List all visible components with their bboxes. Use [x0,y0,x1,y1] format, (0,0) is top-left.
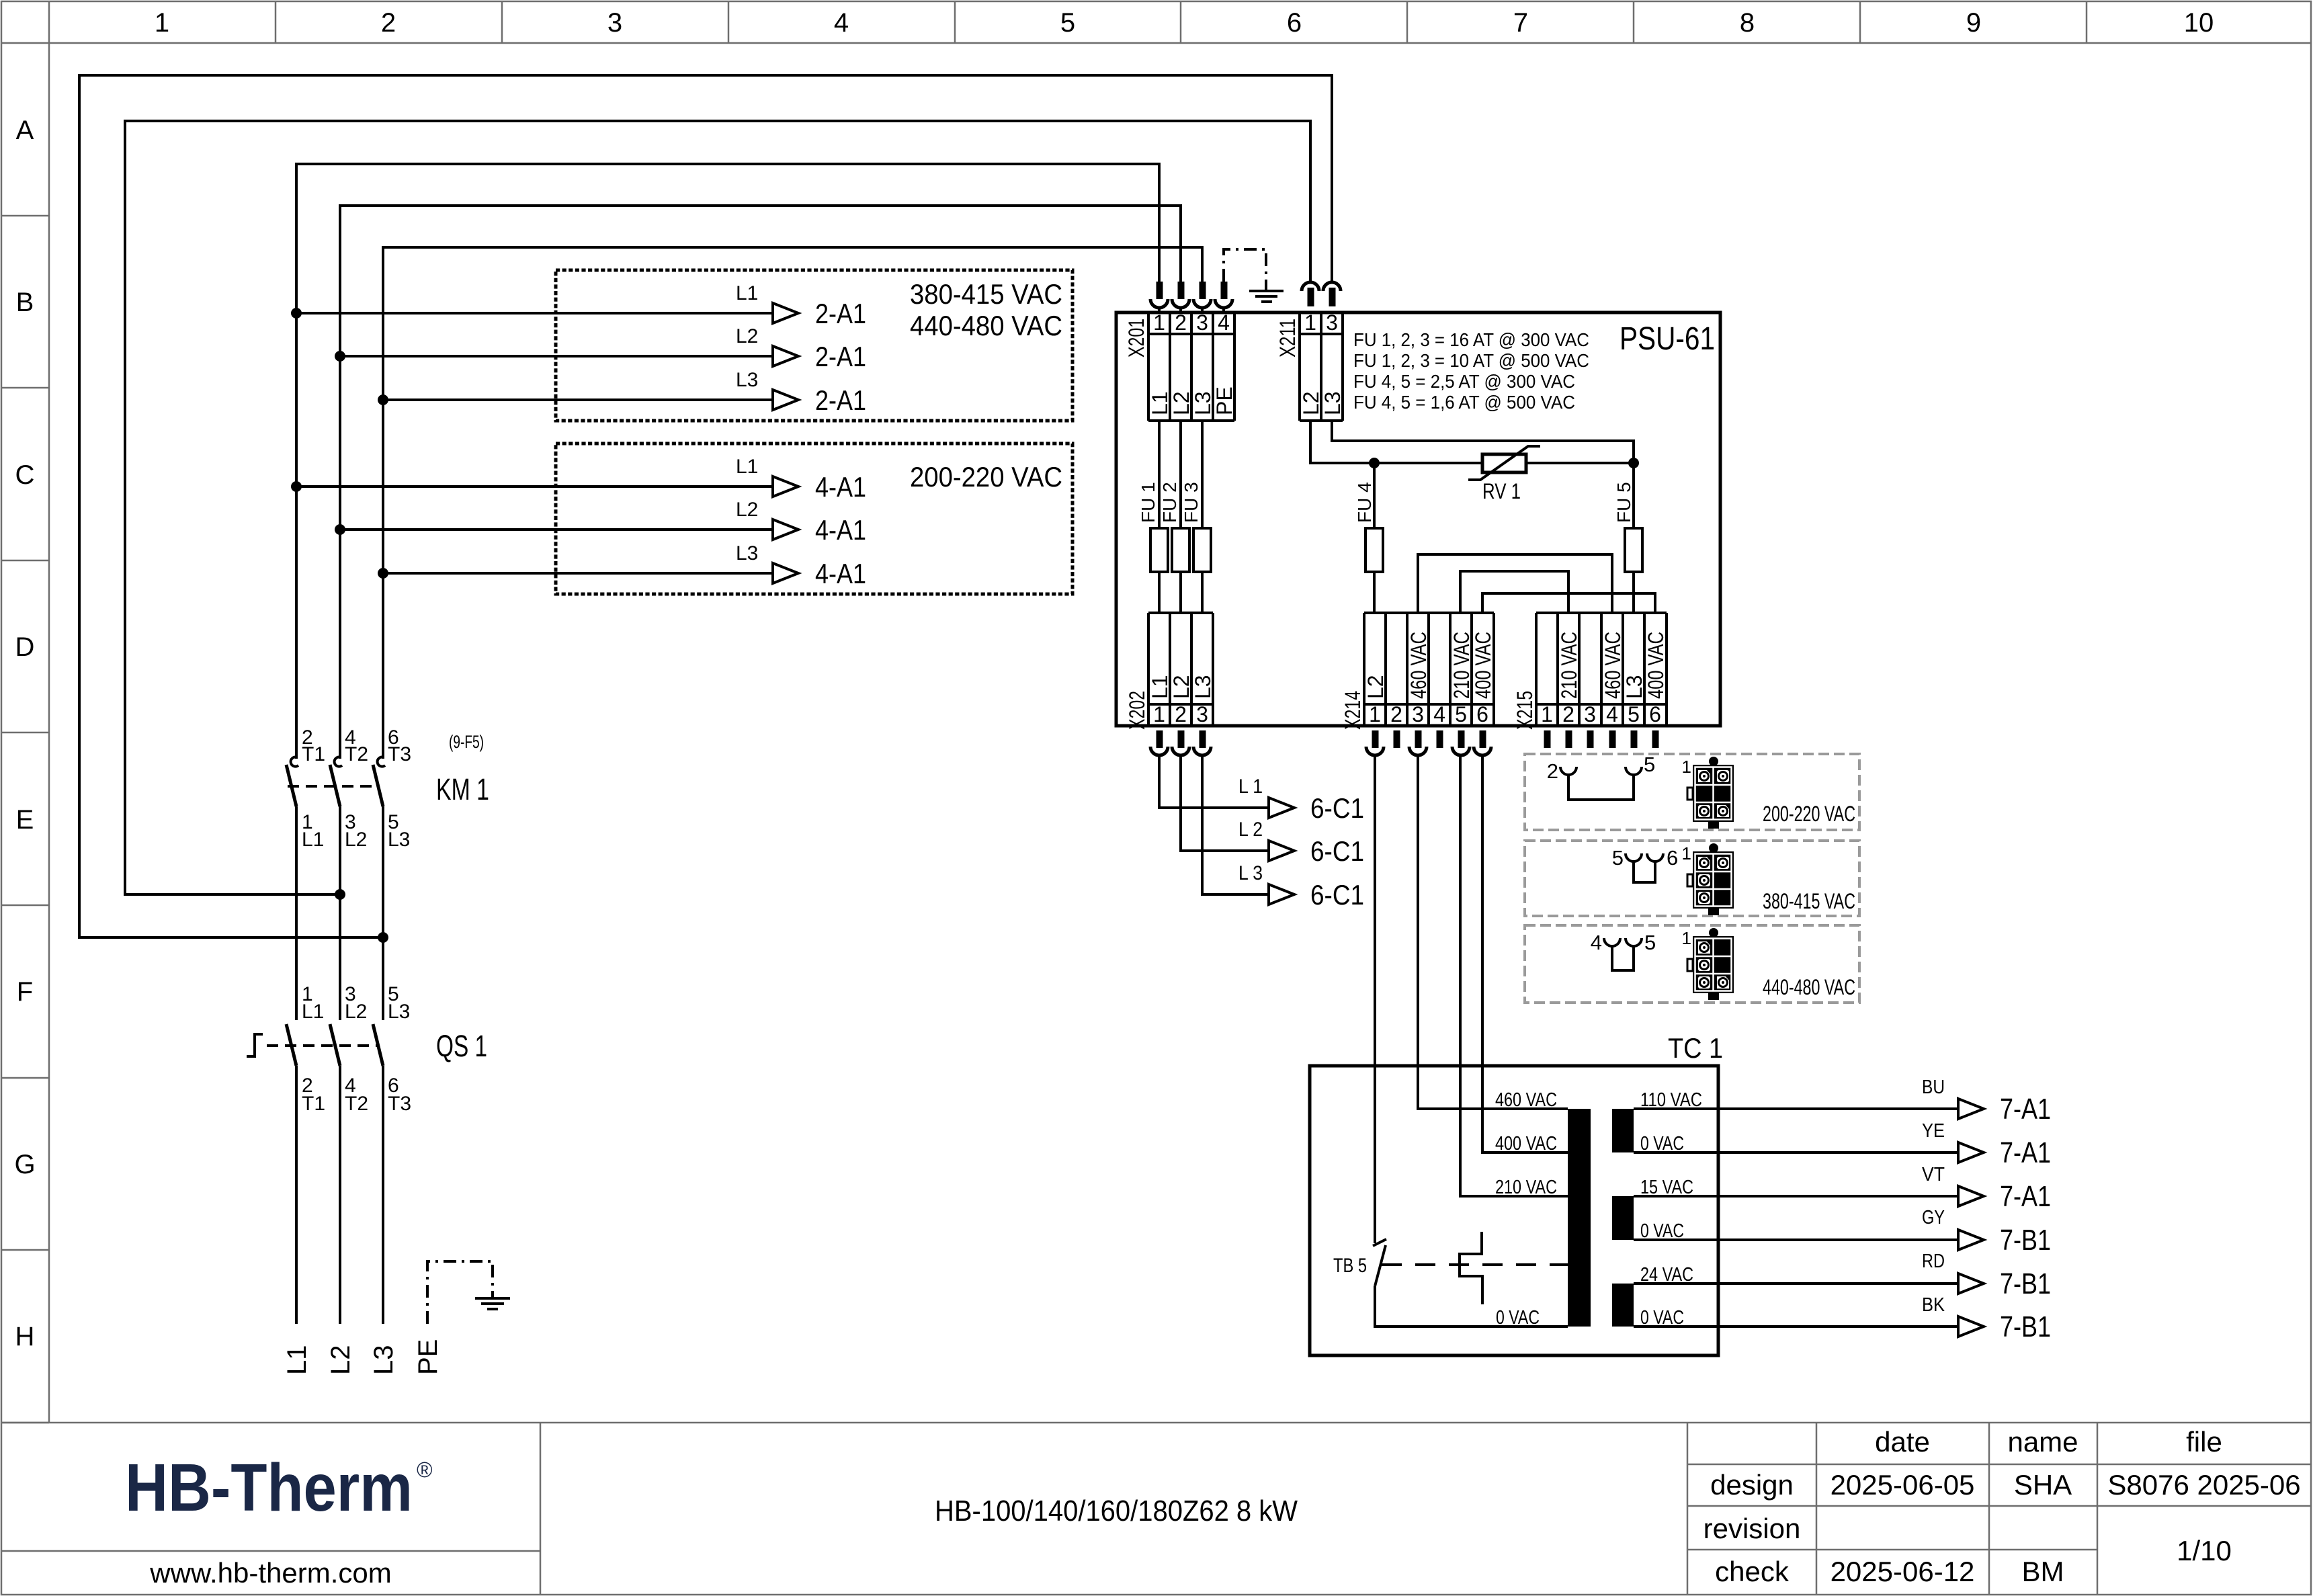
svg-text:400 VAC: 400 VAC [1495,1133,1557,1154]
svg-text:3: 3 [1326,310,1338,335]
svg-text:4: 4 [1433,702,1445,726]
svg-text:1: 1 [1541,702,1553,726]
svg-text:L2: L2 [1299,391,1323,415]
svg-text:6-C1: 6-C1 [1310,835,1364,867]
svg-text:1: 1 [1682,928,1691,948]
svg-text:T2: T2 [345,1093,368,1115]
svg-text:X215: X215 [1513,691,1537,730]
svg-text:3: 3 [1584,702,1596,726]
svg-text:FU 1, 2, 3 = 10 AT @ 500 VAC: FU 1, 2, 3 = 10 AT @ 500 VAC [1353,350,1589,371]
svg-text:9: 9 [1966,8,1981,38]
svg-text:L1: L1 [1148,675,1172,699]
svg-text:3: 3 [1196,702,1208,726]
svg-text:3: 3 [1412,702,1424,726]
svg-text:7: 7 [1513,8,1528,38]
svg-text:2: 2 [1390,702,1402,726]
svg-text:L3: L3 [388,829,410,851]
svg-text:date: date [1875,1426,1930,1458]
svg-text:SHA: SHA [2014,1469,2072,1501]
svg-text:T3: T3 [388,743,411,765]
svg-text:L3: L3 [1191,675,1215,699]
svg-text:7-A1: 7-A1 [2000,1093,2051,1126]
svg-text:HB-Therm: HB-Therm [125,1450,413,1525]
svg-text:7-B1: 7-B1 [2000,1224,2051,1257]
svg-text:PE: PE [1212,386,1236,415]
svg-text:L2: L2 [326,1345,355,1376]
svg-text:380-415 VAC: 380-415 VAC [910,278,1062,310]
svg-text:1: 1 [1153,702,1165,726]
svg-text:T1: T1 [302,743,325,765]
svg-text:L 2: L 2 [1238,818,1263,841]
svg-text:0 VAC: 0 VAC [1496,1307,1540,1329]
svg-text:5: 5 [1060,8,1075,38]
svg-text:210 VAC: 210 VAC [1557,632,1581,699]
svg-text:VT: VT [1922,1164,1945,1185]
svg-text:FU 1, 2, 3 = 16 AT @ 300 VAC: FU 1, 2, 3 = 16 AT @ 300 VAC [1353,329,1589,350]
svg-text:C: C [15,460,35,490]
svg-text:L1: L1 [736,456,758,478]
svg-text:TB 5: TB 5 [1333,1255,1367,1277]
svg-text:2025-06-12: 2025-06-12 [1831,1556,1975,1587]
svg-text:400 VAC: 400 VAC [1644,632,1668,699]
svg-text:FU 1: FU 1 [1138,482,1159,523]
svg-text:RD: RD [1922,1251,1945,1272]
svg-text:L1: L1 [282,1345,312,1376]
svg-text:T2: T2 [345,743,368,765]
svg-text:E: E [16,805,34,835]
svg-text:440-480 VAC: 440-480 VAC [910,310,1062,341]
svg-text:4-A1: 4-A1 [815,558,866,589]
svg-text:3: 3 [607,8,622,38]
svg-text:L1: L1 [1148,391,1172,415]
svg-text:1: 1 [1682,843,1691,864]
svg-text:KM 1: KM 1 [436,772,489,806]
svg-text:L3: L3 [736,542,758,564]
svg-text:file: file [2186,1426,2222,1458]
svg-text:PE: PE [413,1339,443,1375]
svg-text:7-B1: 7-B1 [2000,1310,2051,1343]
svg-text:L 1: L 1 [1238,775,1263,798]
svg-text:L2: L2 [1169,675,1193,699]
svg-text:X214: X214 [1341,691,1365,730]
svg-text:1: 1 [155,8,169,38]
svg-text:FU 4, 5 = 2,5 AT @ 300 VAC: FU 4, 5 = 2,5 AT @ 300 VAC [1353,371,1575,392]
svg-text:L2: L2 [345,829,367,851]
svg-text:S8076 2025-06: S8076 2025-06 [2107,1469,2300,1501]
svg-text:7-A1: 7-A1 [2000,1180,2051,1213]
svg-text:L3: L3 [369,1345,398,1376]
svg-text:check: check [1715,1556,1790,1587]
svg-text:BK: BK [1922,1294,1945,1316]
svg-text:®: ® [417,1458,433,1482]
svg-text:6: 6 [1667,846,1678,870]
svg-text:210 VAC: 210 VAC [1449,632,1474,699]
svg-text:200-220 VAC: 200-220 VAC [1763,802,1855,826]
svg-text:BM: BM [2022,1556,2064,1587]
svg-text:FU 5: FU 5 [1613,482,1634,523]
svg-text:5: 5 [1644,931,1656,954]
svg-text:400 VAC: 400 VAC [1471,632,1495,699]
svg-text:GY: GY [1922,1207,1945,1228]
svg-text:L3: L3 [736,369,758,391]
svg-text:5: 5 [1628,702,1640,726]
svg-text:TC 1: TC 1 [1668,1032,1723,1064]
svg-text:L3: L3 [388,1001,410,1023]
svg-text:1/10: 1/10 [2177,1535,2232,1566]
svg-text:FU 2: FU 2 [1159,482,1180,523]
svg-text:4-A1: 4-A1 [815,514,866,546]
svg-text:X201: X201 [1124,319,1148,358]
svg-text:4: 4 [1218,310,1230,335]
svg-text:X202: X202 [1125,691,1149,730]
svg-text:200-220 VAC: 200-220 VAC [910,461,1062,493]
svg-text:T3: T3 [388,1093,411,1115]
svg-text:revision: revision [1704,1513,1801,1544]
svg-text:7-A1: 7-A1 [2000,1136,2051,1169]
svg-text:1: 1 [1304,310,1316,335]
svg-text:F: F [17,977,33,1007]
svg-text:24 VAC: 24 VAC [1640,1264,1693,1286]
svg-text:RV 1: RV 1 [1482,479,1521,503]
svg-text:design: design [1710,1469,1794,1501]
svg-text:G: G [14,1150,35,1179]
svg-text:L2: L2 [736,325,758,347]
svg-text:L3: L3 [1320,391,1345,415]
svg-text:4-A1: 4-A1 [815,471,866,503]
svg-text:5: 5 [1455,702,1467,726]
svg-text:2: 2 [1562,702,1574,726]
svg-text:L3: L3 [1191,391,1215,415]
svg-text:1: 1 [1153,310,1165,335]
svg-text:YE: YE [1922,1120,1945,1142]
svg-text:210 VAC: 210 VAC [1495,1177,1557,1198]
svg-text:380-415 VAC: 380-415 VAC [1763,889,1855,913]
svg-text:460 VAC: 460 VAC [1495,1089,1557,1111]
svg-text:L 3: L 3 [1238,862,1263,884]
svg-text:2: 2 [1175,310,1187,335]
svg-text:BU: BU [1922,1077,1945,1098]
svg-text:6-C1: 6-C1 [1310,792,1364,824]
svg-text:460 VAC: 460 VAC [1406,632,1431,699]
svg-text:2025-06-05: 2025-06-05 [1831,1469,1975,1501]
svg-text:H: H [15,1322,35,1351]
svg-text:6-C1: 6-C1 [1310,879,1364,911]
svg-text:10: 10 [2184,8,2214,38]
svg-text:6: 6 [1287,8,1302,38]
svg-text:6: 6 [1649,702,1661,726]
svg-text:D: D [15,632,35,662]
svg-text:440-480 VAC: 440-480 VAC [1763,975,1855,999]
svg-text:1: 1 [1369,702,1381,726]
svg-text:FU 4, 5 = 1,6 AT @ 500 VAC: FU 4, 5 = 1,6 AT @ 500 VAC [1353,392,1575,413]
svg-text:www.hb-therm.com: www.hb-therm.com [149,1557,391,1589]
svg-text:L3: L3 [1622,675,1646,699]
svg-text:2-A1: 2-A1 [815,341,866,372]
svg-text:7-B1: 7-B1 [2000,1267,2051,1300]
svg-text:4: 4 [834,8,849,38]
svg-text:FU 3: FU 3 [1181,482,1202,523]
svg-text:X211: X211 [1275,319,1300,358]
svg-text:110 VAC: 110 VAC [1640,1089,1702,1111]
svg-text:2: 2 [381,8,396,38]
svg-text:5: 5 [1644,753,1655,776]
svg-text:1: 1 [1682,757,1691,777]
svg-text:name: name [2007,1426,2078,1458]
svg-text:0 VAC: 0 VAC [1640,1133,1684,1154]
svg-text:2: 2 [1547,759,1558,783]
svg-text:L2: L2 [736,499,758,521]
svg-text:L2: L2 [1169,391,1193,415]
svg-text:2: 2 [1175,702,1187,726]
svg-text:15 VAC: 15 VAC [1640,1177,1693,1198]
svg-text:L1: L1 [302,829,324,851]
svg-text:(9-F5): (9-F5) [449,732,484,752]
svg-text:L1: L1 [736,282,758,304]
svg-text:4: 4 [1606,702,1618,726]
svg-text:5: 5 [1612,846,1624,870]
svg-text:8: 8 [1740,8,1755,38]
svg-text:L1: L1 [302,1001,324,1023]
svg-text:B: B [16,288,34,317]
svg-text:A: A [16,116,34,145]
svg-text:FU 4: FU 4 [1354,482,1375,523]
svg-text:6: 6 [1476,702,1488,726]
svg-text:2-A1: 2-A1 [815,298,866,329]
svg-text:PSU-61: PSU-61 [1620,321,1715,357]
svg-text:4: 4 [1591,931,1602,954]
svg-text:0 VAC: 0 VAC [1640,1307,1684,1329]
svg-text:HB-100/140/160/180Z62 8 kW: HB-100/140/160/180Z62 8 kW [935,1495,1298,1527]
svg-text:3: 3 [1196,310,1208,335]
svg-text:460 VAC: 460 VAC [1601,632,1625,699]
svg-text:T1: T1 [302,1093,325,1115]
svg-text:L2: L2 [1363,675,1388,699]
svg-text:QS 1: QS 1 [436,1029,487,1063]
svg-text:2-A1: 2-A1 [815,384,866,416]
svg-text:L2: L2 [345,1001,367,1023]
svg-text:0 VAC: 0 VAC [1640,1220,1684,1242]
